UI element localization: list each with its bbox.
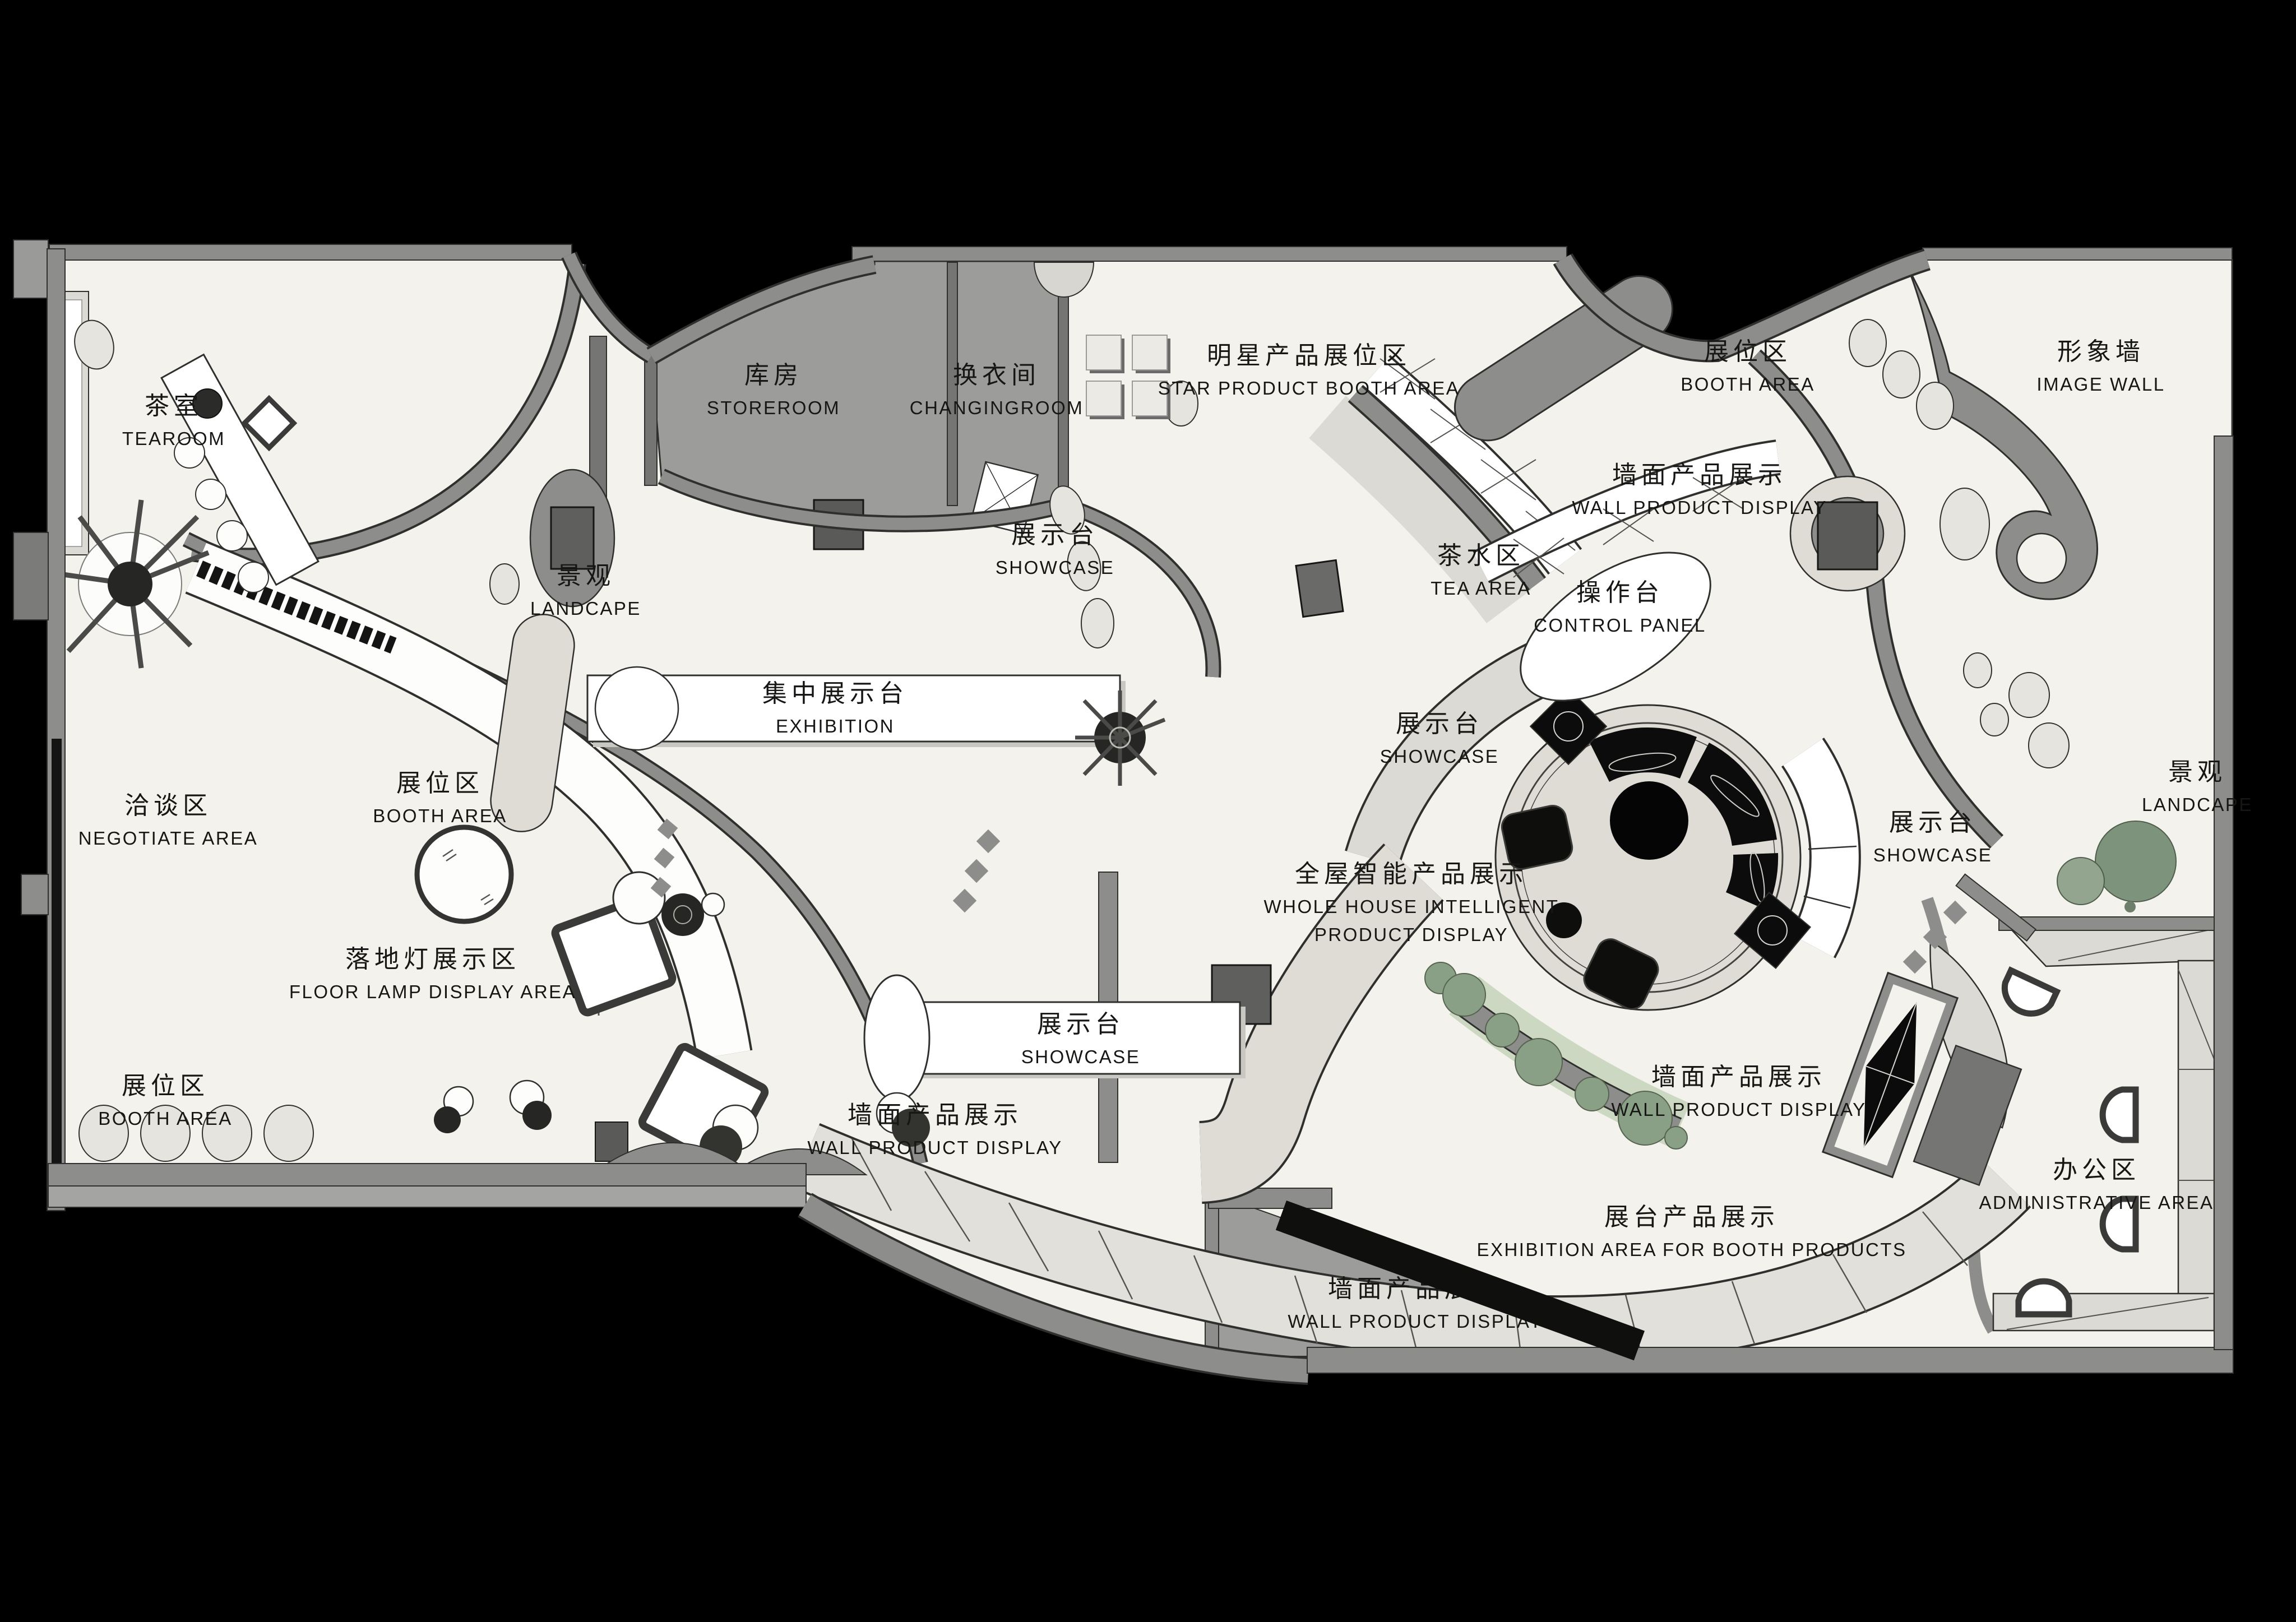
label-landscape-left: 景观 LANDCAPE [530, 555, 641, 619]
label-wall-product-display-bottom-left: 墙面产品展示 WALL PRODUCT DISPLAY [807, 1095, 1062, 1158]
label-floor-lamp-display-area: 落地灯展示区 FLOOR LAMP DISPLAY AREA [289, 939, 576, 1003]
label-control-panel: 操作台 CONTROL PANEL [1534, 572, 1706, 636]
floor-plan-canvas: 茶室 TEAROOM 库房 STOREROOM 换衣间 CHANGINGROOM… [0, 0, 2296, 1622]
label-wall-product-display-right: 墙面产品展示 WALL PRODUCT DISPLAY [1611, 1056, 1866, 1120]
label-showcase-right: 展示台 SHOWCASE [1873, 802, 1993, 866]
office-chair [2019, 1281, 2069, 1314]
label-exhibition-booth-products: 展台产品展示 EXHIBITION AREA FOR BOOTH PRODUCT… [1476, 1197, 1906, 1260]
label-whole-house: 全屋智能产品展示 WHOLE HOUSE INTELLIGENT PRODUCT… [1264, 854, 1559, 946]
office-chair [2103, 1090, 2136, 1140]
label-showcase-mid: 展示台 SHOWCASE [1380, 703, 1499, 767]
label-booth-area-bottom-left: 展位区 BOOTH AREA [98, 1065, 233, 1129]
label-landscape-right: 景观 LANDCAPE [2142, 752, 2253, 815]
label-wall-product-display-top: 墙面产品展示 WALL PRODUCT DISPLAY [1572, 455, 1827, 518]
label-administrative-area: 办公区 ADMINISTRATIVE AREA [1979, 1150, 2214, 1213]
label-showcase-left: 展示台 SHOWCASE [996, 515, 1115, 578]
label-storeroom: 库房 STOREROOM [707, 355, 840, 419]
label-exhibition: 集中展示台 EXHIBITION [762, 673, 908, 737]
label-changingroom: 换衣间 CHANGINGROOM [910, 355, 1084, 419]
label-star-product-booth-area: 明星产品展位区 STAR PRODUCT BOOTH AREA [1158, 335, 1460, 399]
label-tearoom: 茶室 TEAROOM [122, 386, 225, 449]
label-negotiate-area: 洽谈区 NEGOTIATE AREA [78, 785, 258, 849]
label-image-wall: 形象墙 IMAGE WALL [2036, 331, 2165, 395]
label-booth-area-top: 展位区 BOOTH AREA [1681, 331, 1815, 395]
label-booth-area-left: 展位区 BOOTH AREA [373, 763, 507, 827]
label-showcase-bottom: 展示台 SHOWCASE [1021, 1004, 1141, 1068]
label-tea-area: 茶水区 TEA AREA [1431, 535, 1531, 599]
